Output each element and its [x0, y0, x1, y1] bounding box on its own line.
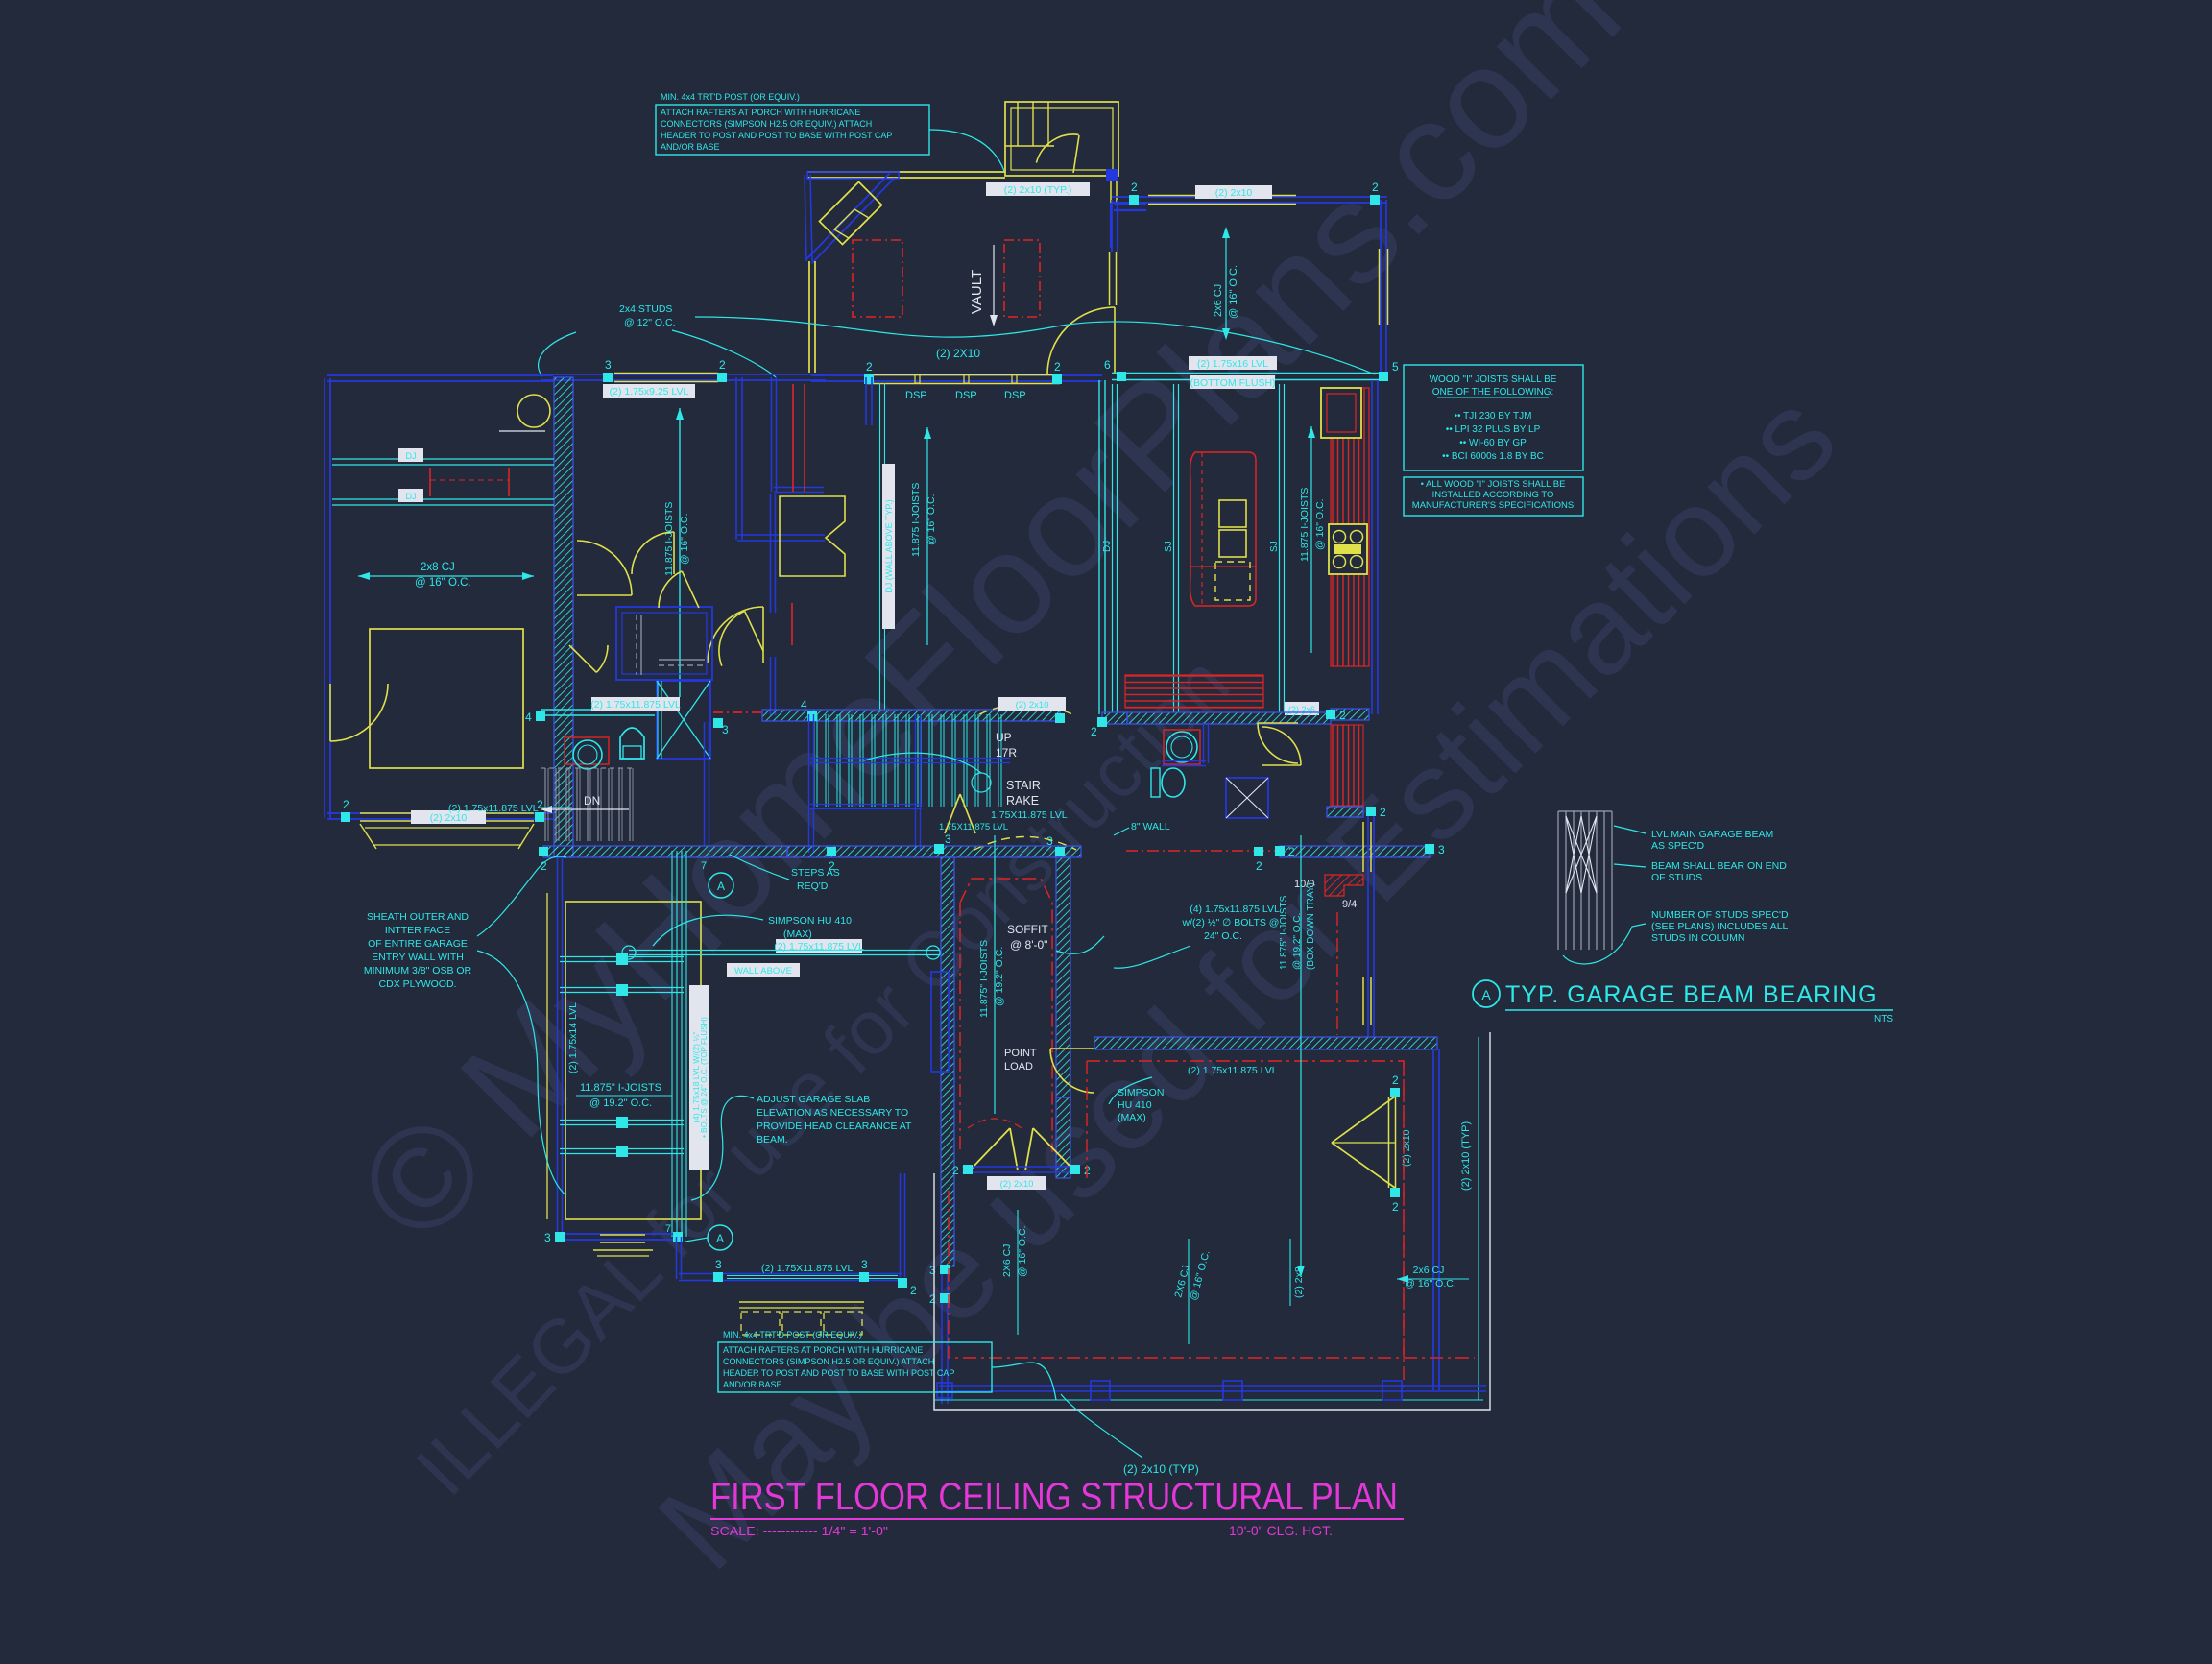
svg-text:3: 3	[945, 832, 951, 846]
svg-text:(4) 1.75x11.875 LVL: (4) 1.75x11.875 LVL	[1190, 904, 1280, 915]
svg-text:SCALE: ------------ 1/4" = 1'-: SCALE: ------------ 1/4" = 1'-0"	[710, 1524, 888, 1538]
svg-text:1.75X11.875 LVL: 1.75X11.875 LVL	[991, 809, 1068, 821]
svg-text:2: 2	[1091, 725, 1097, 738]
svg-text:@ 8'-0": @ 8'-0"	[1010, 938, 1047, 952]
svg-text:DN: DN	[584, 794, 600, 808]
svg-text:(MAX): (MAX)	[783, 928, 812, 940]
svg-text:2: 2	[1288, 845, 1295, 858]
svg-text:A: A	[717, 880, 725, 893]
svg-text:DSP: DSP	[1004, 390, 1026, 401]
svg-text:w/(2) ½" ∅ BOLTS @: w/(2) ½" ∅ BOLTS @	[1182, 917, 1280, 928]
svg-text:2: 2	[929, 1292, 936, 1306]
svg-text:(2) 2x8: (2) 2x8	[1293, 1266, 1305, 1298]
svg-text:CONNECTORS (SIMPSON H2.5 OR EQ: CONNECTORS (SIMPSON H2.5 OR EQUIV.) ATTA…	[661, 119, 872, 129]
svg-text:MINIMUM 3/8" OSB OR: MINIMUM 3/8" OSB OR	[364, 965, 472, 977]
svg-text:@ 16" O.C.: @ 16" O.C.	[1017, 1226, 1028, 1277]
svg-text:•• WI-60 BY GP: •• WI-60 BY GP	[1459, 438, 1527, 448]
svg-text:CONNECTORS (SIMPSON H2.5 OR EQ: CONNECTORS (SIMPSON H2.5 OR EQUIV.) ATTA…	[723, 1357, 934, 1366]
svg-text:HEADER TO POST AND POST TO BAS: HEADER TO POST AND POST TO BASE WITH POS…	[661, 131, 892, 140]
svg-text:11.875 I-JOISTS: 11.875 I-JOISTS	[1299, 488, 1310, 562]
svg-text:(2) 1.75x16 LVL: (2) 1.75x16 LVL	[1197, 358, 1268, 370]
svg-text:ELEVATION AS NECESSARY TO: ELEVATION AS NECESSARY TO	[757, 1107, 908, 1119]
svg-text:4: 4	[801, 698, 807, 711]
svg-text:SHEATH OUTER AND: SHEATH OUTER AND	[367, 911, 469, 923]
svg-text:ATTACH RAFTERS AT PORCH WITH H: ATTACH RAFTERS AT PORCH WITH HURRICANE	[661, 108, 860, 117]
svg-text:• BOLTS @ 24" O.C. (TOP FLUSH): • BOLTS @ 24" O.C. (TOP FLUSH)	[700, 1017, 709, 1138]
svg-text:2x8 CJ: 2x8 CJ	[421, 562, 455, 573]
svg-text:(2) 1.75x11.875 LVL: (2) 1.75x11.875 LVL	[448, 803, 539, 814]
svg-text:AND/OR BASE: AND/OR BASE	[661, 142, 720, 152]
svg-text:(MAX): (MAX)	[1118, 1112, 1146, 1123]
svg-text:UP: UP	[996, 731, 1012, 744]
svg-text:2x6 CJ: 2x6 CJ	[1413, 1265, 1445, 1276]
svg-text:2: 2	[1131, 181, 1138, 194]
svg-text:ADJUST GARAGE SLAB: ADJUST GARAGE SLAB	[757, 1094, 870, 1105]
svg-text:PROVIDE HEAD CLEARANCE AT: PROVIDE HEAD CLEARANCE AT	[757, 1121, 912, 1132]
svg-text:OF ENTIRE GARAGE: OF ENTIRE GARAGE	[368, 938, 468, 950]
svg-text:STEPS AS: STEPS AS	[791, 867, 840, 879]
svg-text:4: 4	[525, 711, 532, 724]
svg-text:LOAD: LOAD	[1004, 1061, 1033, 1073]
svg-text:(2) 1.75X11.875 LVL: (2) 1.75X11.875 LVL	[761, 1263, 854, 1274]
svg-text:(2) 2x10: (2) 2x10	[1000, 1179, 1034, 1190]
svg-text:(2) 2x10: (2) 2x10	[1016, 700, 1049, 711]
svg-text:5: 5	[1392, 360, 1399, 374]
svg-text:(2) 2x10 (TYP): (2) 2x10 (TYP)	[1460, 1121, 1472, 1191]
svg-text:3: 3	[715, 1258, 722, 1271]
svg-text:@ 19.2" O.C.: @ 19.2" O.C.	[994, 947, 1005, 1006]
svg-text:3: 3	[605, 358, 612, 372]
svg-text:2: 2	[1372, 181, 1379, 194]
svg-text:STAIR: STAIR	[1006, 779, 1041, 792]
svg-text:MANUFACTURER'S SPECIFICATIONS: MANUFACTURER'S SPECIFICATIONS	[1412, 500, 1574, 511]
svg-text:2: 2	[719, 358, 726, 372]
svg-text:11.875" I-JOISTS: 11.875" I-JOISTS	[978, 940, 990, 1018]
svg-text:•• TJI 230 BY TJM: •• TJI 230 BY TJM	[1455, 411, 1532, 422]
svg-text:HEADER TO POST AND POST TO BAS: HEADER TO POST AND POST TO BASE WITH POS…	[723, 1368, 954, 1378]
svg-text:2: 2	[1339, 709, 1346, 722]
svg-text:SOFFIT: SOFFIT	[1007, 923, 1048, 936]
svg-text:OF STUDS: OF STUDS	[1651, 872, 1702, 883]
svg-text:3: 3	[722, 723, 729, 736]
svg-text:2: 2	[1054, 360, 1061, 374]
svg-text:POINT: POINT	[1004, 1048, 1037, 1059]
svg-text:3: 3	[1438, 843, 1445, 856]
svg-text:(2) 2X10: (2) 2X10	[936, 347, 980, 360]
svg-text:INSTALLED ACCORDING TO: INSTALLED ACCORDING TO	[1432, 490, 1554, 500]
svg-text:24" O.C.: 24" O.C.	[1204, 930, 1242, 942]
svg-text:2: 2	[1392, 1200, 1399, 1214]
svg-text:@ 16" O.C.: @ 16" O.C.	[679, 514, 690, 565]
svg-text:DJ (WALL ABOVE TYP.): DJ (WALL ABOVE TYP.)	[884, 499, 894, 593]
svg-text:11.875" I-JOISTS: 11.875" I-JOISTS	[580, 1082, 661, 1094]
svg-text:8" WALL: 8" WALL	[1131, 821, 1170, 832]
svg-text:(2) 1.75x11.875 LVL: (2) 1.75x11.875 LVL	[774, 941, 864, 953]
svg-text:•• BCI 6000s 1.8 BY BC: •• BCI 6000s 1.8 BY BC	[1442, 451, 1544, 462]
svg-text:SIMPSON: SIMPSON	[1118, 1087, 1164, 1098]
svg-text:10'-0" CLG. HGT.: 10'-0" CLG. HGT.	[1229, 1523, 1333, 1538]
svg-text:A: A	[1481, 987, 1491, 1002]
svg-text:•• LPI 32 PLUS BY LP: •• LPI 32 PLUS BY LP	[1446, 424, 1541, 435]
svg-text:@ 16" O.C.: @ 16" O.C.	[415, 577, 471, 589]
svg-text:FIRST FLOOR CEILING STRUCTURAL: FIRST FLOOR CEILING STRUCTURAL PLAN	[710, 1476, 1398, 1518]
svg-text:DJ: DJ	[406, 451, 417, 461]
svg-text:DJ: DJ	[1102, 541, 1113, 552]
svg-text:2: 2	[1380, 806, 1386, 819]
svg-text:INTTER FACE: INTTER FACE	[385, 925, 450, 936]
svg-text:2: 2	[343, 798, 349, 811]
svg-text:@ 12" O.C.: @ 12" O.C.	[624, 317, 675, 328]
svg-text:ATTACH RAFTERS AT PORCH WITH H: ATTACH RAFTERS AT PORCH WITH HURRICANE	[723, 1345, 923, 1355]
svg-text:@ 19.2" O.C.: @ 19.2" O.C.	[589, 1097, 652, 1109]
svg-text:ONE OF THE FOLLOWING:: ONE OF THE FOLLOWING:	[1432, 387, 1554, 398]
svg-text:2: 2	[952, 1164, 959, 1177]
svg-text:@ 19.2" O.C.: @ 19.2" O.C.	[1292, 913, 1303, 970]
svg-text:9/4: 9/4	[1342, 899, 1357, 910]
svg-text:7: 7	[701, 860, 707, 872]
svg-text:11.875" I-JOISTS: 11.875" I-JOISTS	[1279, 895, 1289, 970]
svg-text:DSP: DSP	[905, 390, 927, 401]
svg-text:• ALL WOOD "I" JOISTS SHALL BE: • ALL WOOD "I" JOISTS SHALL BE	[1421, 479, 1566, 490]
svg-text:ENTRY WALL WITH: ENTRY WALL WITH	[372, 952, 464, 963]
svg-text:BEAM.: BEAM.	[757, 1134, 788, 1146]
svg-text:CDX PLYWOOD.: CDX PLYWOOD.	[379, 978, 457, 990]
svg-text:DJ: DJ	[406, 492, 417, 501]
svg-text:BEAM SHALL BEAR ON END: BEAM SHALL BEAR ON END	[1651, 860, 1787, 872]
svg-text:@ 16" O.C.: @ 16" O.C.	[1228, 265, 1239, 319]
svg-text:NUMBER OF STUDS SPEC'D: NUMBER OF STUDS SPEC'D	[1651, 909, 1789, 921]
svg-text:NTS: NTS	[1874, 1014, 1893, 1025]
svg-text:(2) 2x10 (TYP): (2) 2x10 (TYP)	[1123, 1462, 1199, 1476]
svg-text:@ 16" O.C.: @ 16" O.C.	[1314, 499, 1326, 550]
svg-text:SJ: SJ	[1164, 541, 1174, 552]
svg-text:2: 2	[910, 1284, 917, 1297]
svg-text:3: 3	[544, 1231, 551, 1244]
svg-text:MIN. 4x4 TRT'D POST (OR EQUIV.: MIN. 4x4 TRT'D POST (OR EQUIV.)	[661, 92, 800, 102]
svg-text:2x6 CJ: 2x6 CJ	[1213, 284, 1224, 317]
svg-text:AS SPEC'D: AS SPEC'D	[1651, 840, 1705, 852]
svg-text:WALL ABOVE: WALL ABOVE	[734, 966, 792, 977]
svg-text:AND/OR BASE: AND/OR BASE	[723, 1380, 782, 1389]
svg-text:TYP. GARAGE BEAM BEARING: TYP. GARAGE BEAM BEARING	[1505, 981, 1878, 1008]
svg-text:2x4 STUDS: 2x4 STUDS	[619, 303, 672, 315]
svg-text:11.875 I-JOISTS: 11.875 I-JOISTS	[910, 483, 922, 557]
svg-text:SJ: SJ	[1269, 541, 1280, 552]
svg-text:3: 3	[1046, 834, 1053, 848]
svg-text:STUDS IN COLUMN: STUDS IN COLUMN	[1651, 932, 1744, 944]
svg-text:A: A	[716, 1232, 724, 1245]
svg-text:17R: 17R	[996, 746, 1017, 760]
svg-text:3: 3	[929, 1264, 936, 1277]
svg-text:LVL MAIN GARAGE BEAM: LVL MAIN GARAGE BEAM	[1651, 829, 1773, 840]
svg-text:(2) 1.75x11.875 LVL: (2) 1.75x11.875 LVL	[590, 699, 681, 711]
svg-text:(BOTTOM FLUSH): (BOTTOM FLUSH)	[1190, 377, 1275, 389]
svg-text:DSP: DSP	[955, 390, 977, 401]
svg-text:3: 3	[861, 1258, 868, 1271]
svg-text:HU 410: HU 410	[1118, 1099, 1152, 1111]
svg-text:2: 2	[1256, 859, 1262, 873]
svg-text:(2) 2x10: (2) 2x10	[1215, 187, 1253, 199]
svg-text:(2) 2x10 (TYP.): (2) 2x10 (TYP.)	[1004, 184, 1071, 196]
svg-text:SIMPSON HU 410: SIMPSON HU 410	[768, 915, 852, 927]
svg-text:RAKE: RAKE	[1006, 794, 1039, 808]
svg-text:2: 2	[1392, 1073, 1399, 1087]
svg-text:VAULT: VAULT	[969, 270, 985, 314]
svg-text:(2) 1.75x14 LVL: (2) 1.75x14 LVL	[567, 1002, 579, 1073]
svg-text:(2) 2x10: (2) 2x10	[1401, 1129, 1412, 1167]
svg-text:6: 6	[1104, 358, 1111, 372]
svg-text:(SEE PLANS) INCLUDES ALL: (SEE PLANS) INCLUDES ALL	[1651, 921, 1789, 932]
svg-text:(2) 1.75x11.875 LVL: (2) 1.75x11.875 LVL	[1188, 1065, 1278, 1076]
svg-text:@ 16" O.C.: @ 16" O.C.	[1405, 1278, 1455, 1290]
svg-text:MIN. 4x4 TRT'D POST (OR EQUIV.: MIN. 4x4 TRT'D POST (OR EQUIV.)	[723, 1330, 862, 1339]
svg-text:2X6 CJ: 2X6 CJ	[1001, 1244, 1013, 1277]
svg-text:REQ'D: REQ'D	[797, 880, 829, 892]
svg-text:(BOX DOWN TRAY): (BOX DOWN TRAY)	[1306, 882, 1316, 970]
svg-text:(2) 1.75x9.25 LVL: (2) 1.75x9.25 LVL	[610, 386, 689, 398]
svg-text:1.75X11.875 LVL: 1.75X11.875 LVL	[939, 822, 1008, 832]
svg-text:2: 2	[866, 360, 873, 374]
svg-text:WOOD "I" JOISTS SHALL BE: WOOD "I" JOISTS SHALL BE	[1430, 374, 1557, 385]
